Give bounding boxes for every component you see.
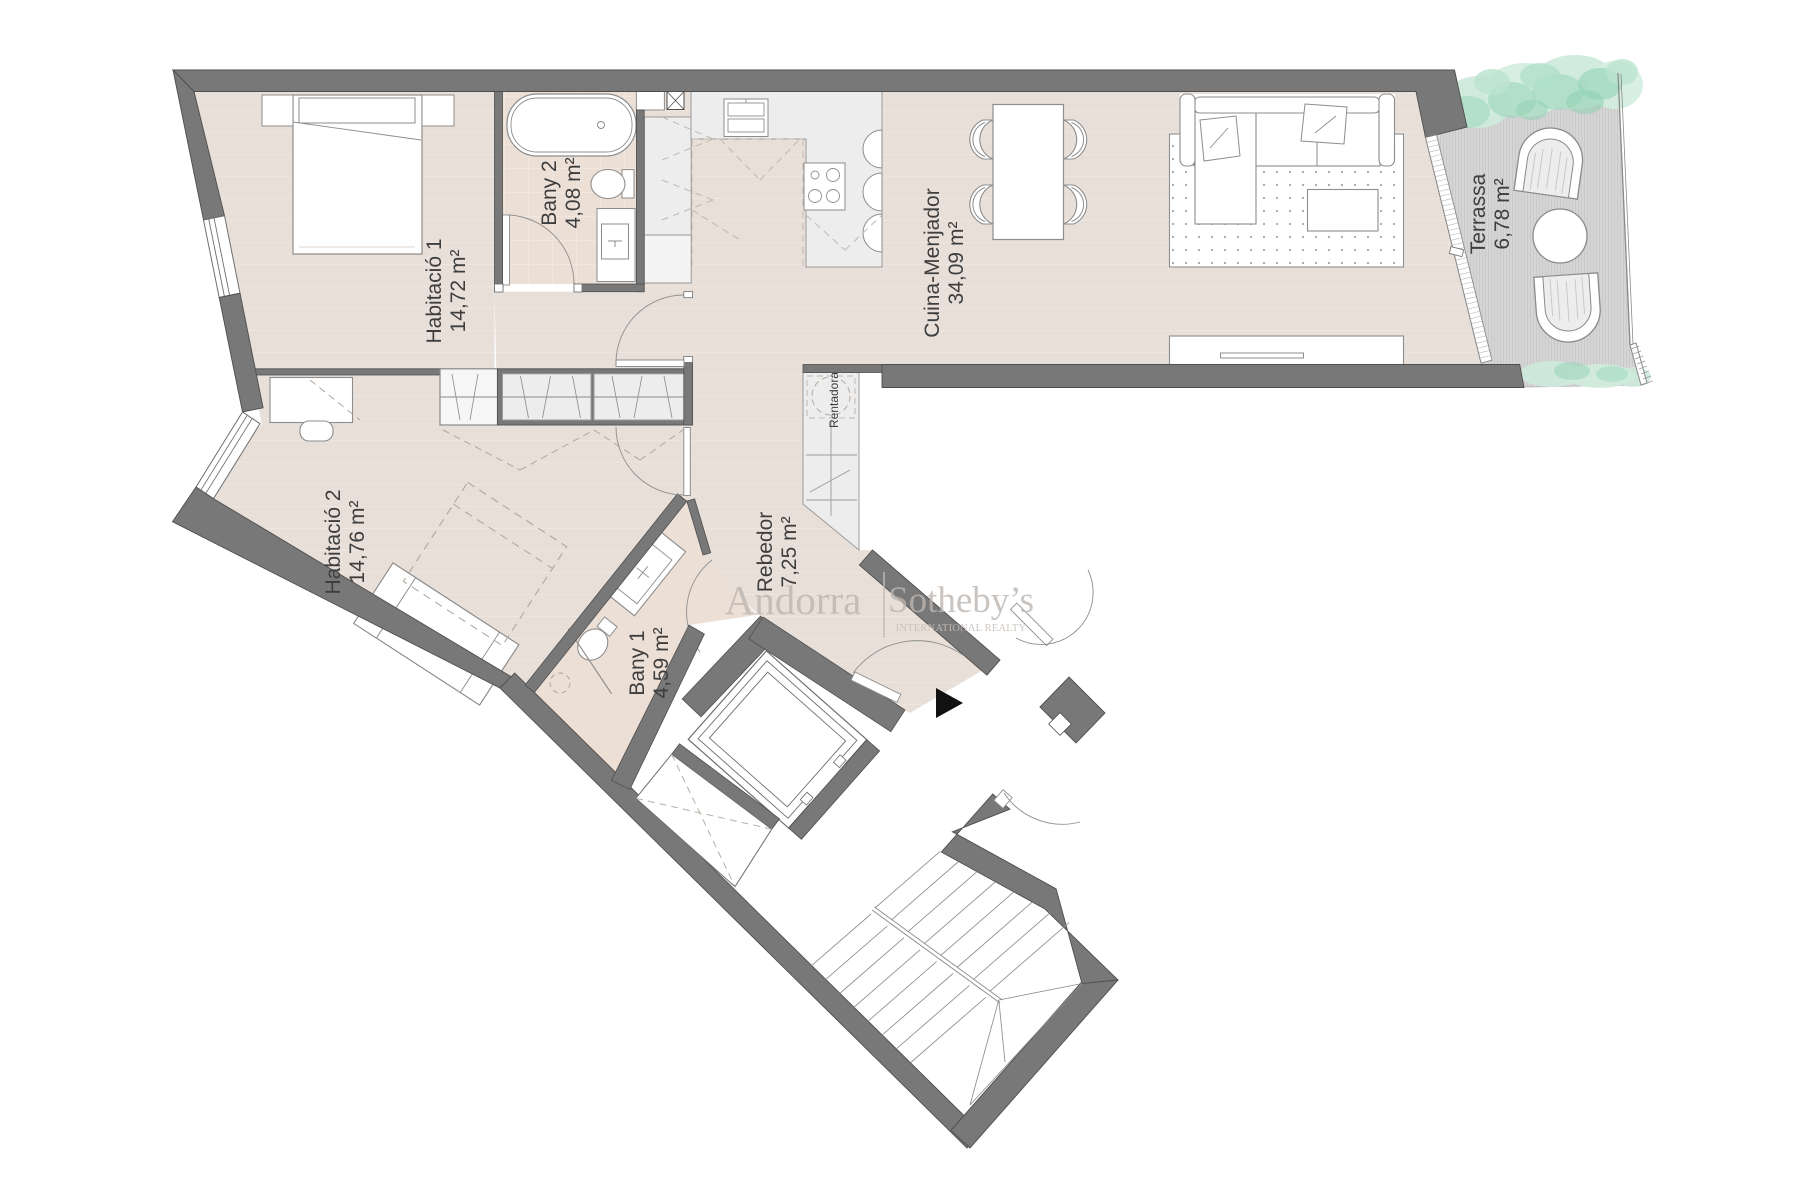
svg-text:INTERNATIONAL REALTY: INTERNATIONAL REALTY xyxy=(896,623,1027,634)
svg-text:Cuina-Menjador: Cuina-Menjador xyxy=(921,188,944,337)
svg-text:Terrassa: Terrassa xyxy=(1467,173,1490,254)
svg-text:Rentadora: Rentadora xyxy=(827,372,841,428)
svg-text:34,09 m²: 34,09 m² xyxy=(945,222,968,305)
svg-text:Andorra: Andorra xyxy=(725,577,862,623)
svg-text:14,76 m²: 14,76 m² xyxy=(346,501,369,584)
svg-text:Habitació 1: Habitació 1 xyxy=(423,238,446,343)
svg-text:Bany 1: Bany 1 xyxy=(626,630,649,695)
svg-text:Bany 2: Bany 2 xyxy=(538,160,561,225)
svg-text:Sotheby’s: Sotheby’s xyxy=(888,580,1034,621)
svg-text:Habitació 2: Habitació 2 xyxy=(322,489,345,594)
svg-text:6,78 m²: 6,78 m² xyxy=(1491,178,1514,249)
svg-text:14,72 m²: 14,72 m² xyxy=(447,250,470,333)
svg-text:4,08 m²: 4,08 m² xyxy=(562,157,585,228)
svg-text:4,59 m²: 4,59 m² xyxy=(650,627,673,698)
